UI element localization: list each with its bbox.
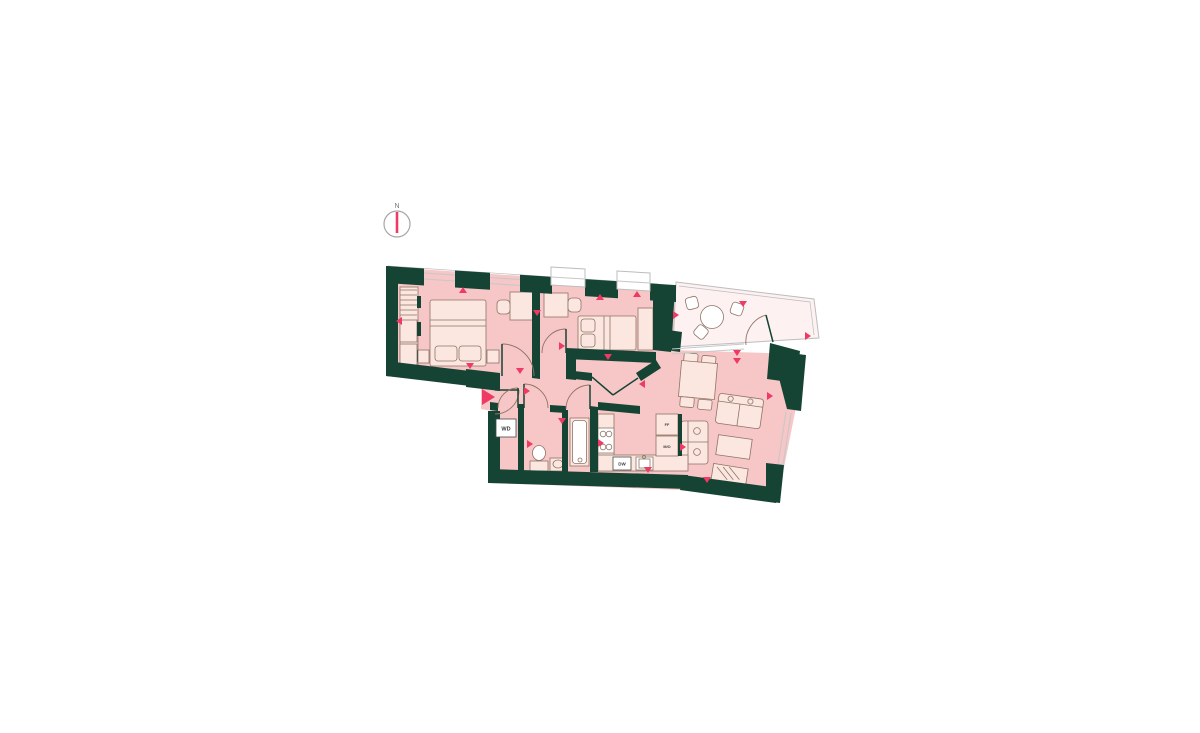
wall-wd-bath [518,410,524,472]
wd-label: WD [501,427,510,433]
coffee-table [716,435,752,460]
dining-set [678,353,719,411]
sofa [715,393,764,429]
bedside-table [418,350,429,363]
compass-north-label: N [394,203,399,210]
pillow [581,334,595,347]
wardrobe [638,308,653,350]
wall-top-4 [585,279,618,298]
wardrobe-jamb [417,296,421,308]
balcony-chair [685,296,700,311]
pillow [435,346,457,361]
toilet-cistern [530,461,548,471]
dining-table [678,360,717,399]
hob [598,428,614,453]
floor-plan-svg: N [0,0,1200,733]
wall-right-2 [766,463,784,503]
sofa-body [715,393,764,429]
wall-shower-kitchen [590,411,598,472]
wall-bedroom-divider [532,287,540,379]
mo-label: M/O [663,445,670,449]
pillow [581,319,595,332]
desk [544,293,568,317]
toilet [533,446,546,461]
wall-lower-top-1 [490,402,498,411]
desk-chair [568,298,581,312]
shower-tray [573,421,587,464]
balcony-table [701,306,724,329]
bedside-table [487,350,499,363]
dining-chair [697,399,712,410]
shower-room [570,418,589,466]
wall-top-2 [455,271,490,290]
compass: N [384,203,410,237]
wardrobe-shelf-box [400,320,417,342]
dw-label: DW [618,462,626,467]
floor-plan-page: N [0,0,1200,733]
pillow [459,346,481,361]
wardrobe-jamb [417,322,421,336]
desk-chair [497,300,510,314]
wall-left [386,266,398,377]
ff-label: FF [665,423,670,427]
dining-chair [680,397,695,408]
